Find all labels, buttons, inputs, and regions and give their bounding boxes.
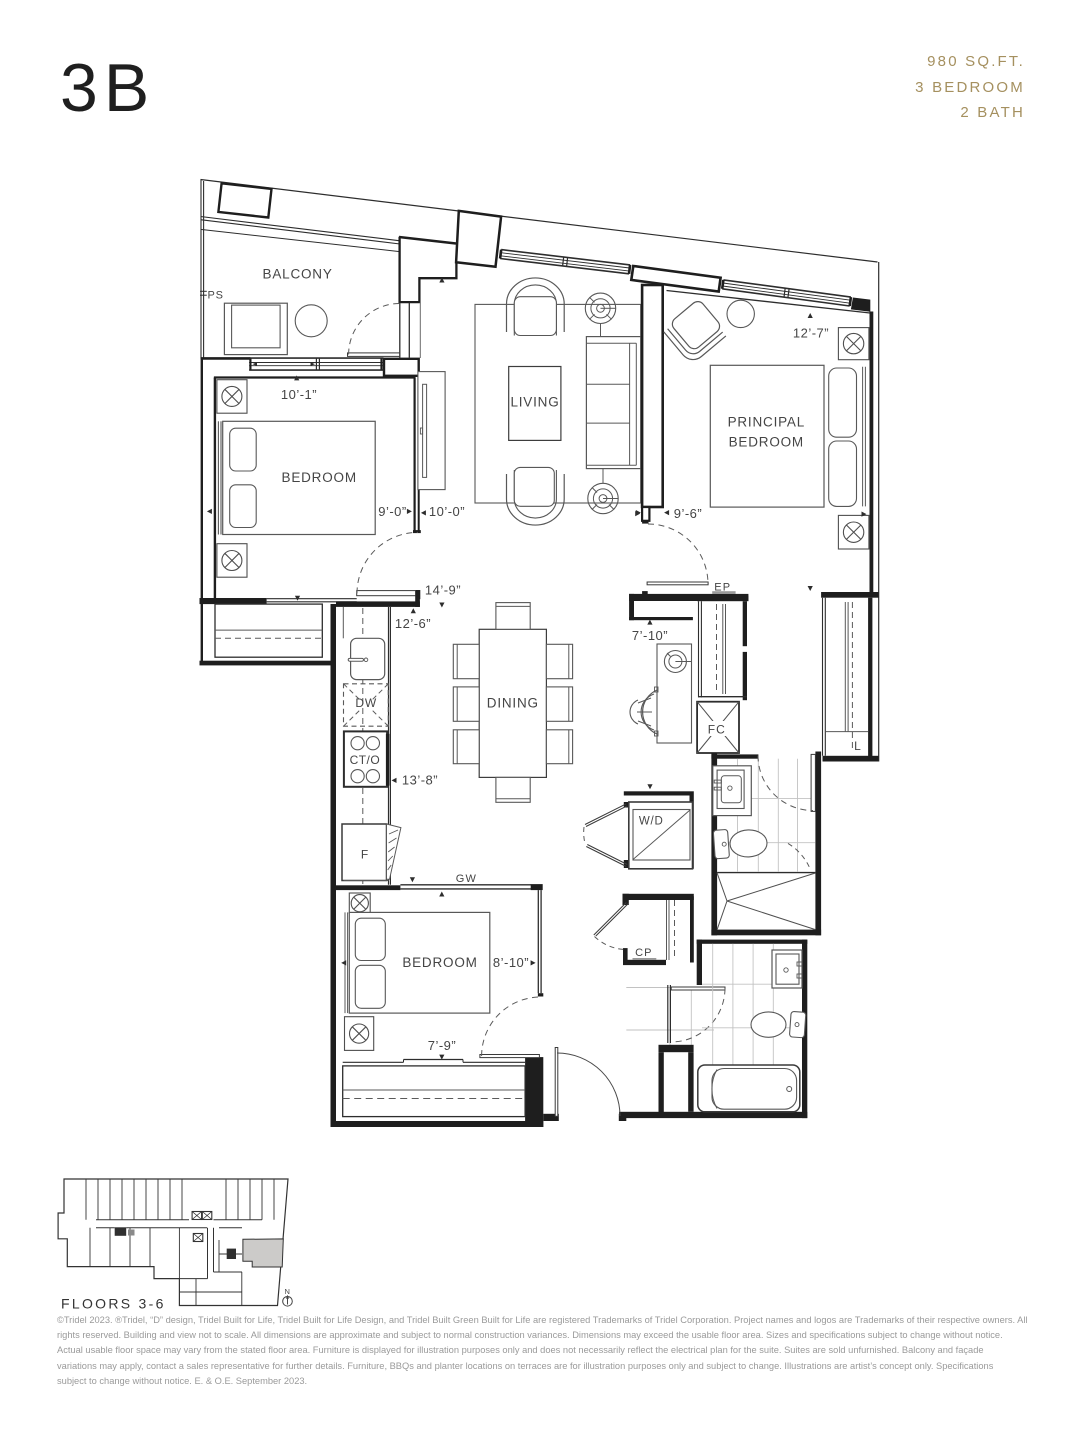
svg-text:9’-0”: 9’-0”: [378, 504, 407, 519]
svg-text:F: F: [361, 848, 369, 862]
svg-text:CT/O: CT/O: [350, 753, 381, 767]
svg-text:FC: FC: [708, 723, 726, 737]
svg-text:14’-9”: 14’-9”: [425, 583, 461, 598]
svg-text:LIVING: LIVING: [510, 395, 559, 410]
svg-text:10’-1”: 10’-1”: [281, 387, 317, 402]
svg-text:BEDROOM: BEDROOM: [402, 955, 477, 970]
svg-text:9’-6”: 9’-6”: [674, 506, 703, 521]
svg-text:EP: EP: [714, 582, 731, 594]
svg-text:7’-10”: 7’-10”: [632, 628, 668, 643]
svg-text:12’-6”: 12’-6”: [395, 616, 431, 631]
svg-text:10’-0”: 10’-0”: [429, 504, 465, 519]
svg-text:FLOORS 3-6: FLOORS 3-6: [61, 1296, 166, 1312]
svg-text:CP: CP: [635, 947, 652, 959]
svg-text:DW: DW: [355, 696, 377, 710]
svg-text:PS: PS: [208, 290, 224, 302]
svg-text:13’-8”: 13’-8”: [402, 773, 438, 788]
svg-text:8’-10”: 8’-10”: [493, 955, 529, 970]
svg-text:BEDROOM: BEDROOM: [282, 470, 357, 485]
svg-text:PRINCIPAL: PRINCIPAL: [728, 415, 805, 430]
svg-text:GW: GW: [456, 873, 477, 885]
svg-text:12’-7”: 12’-7”: [793, 326, 829, 341]
svg-text:7’-9”: 7’-9”: [428, 1038, 457, 1053]
svg-text:BALCONY: BALCONY: [263, 267, 333, 282]
svg-text:L: L: [854, 739, 862, 753]
svg-text:BEDROOM: BEDROOM: [729, 435, 804, 450]
svg-text:DINING: DINING: [487, 696, 539, 711]
svg-text:W/D: W/D: [639, 816, 664, 828]
svg-text:N: N: [285, 1287, 291, 1296]
